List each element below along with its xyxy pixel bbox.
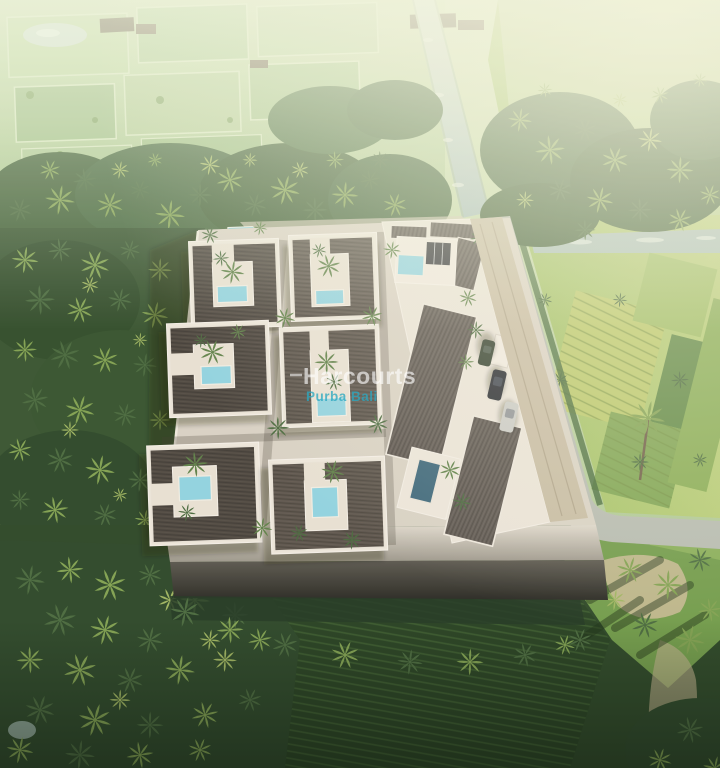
watermark-brand: Harcourts bbox=[303, 363, 416, 389]
scene-svg: Harcourts Purba Bali bbox=[0, 0, 720, 768]
bottom-vignette bbox=[0, 620, 720, 768]
aerial-render: Harcourts Purba Bali bbox=[0, 0, 720, 768]
watermark-office: Purba Bali bbox=[306, 389, 378, 404]
